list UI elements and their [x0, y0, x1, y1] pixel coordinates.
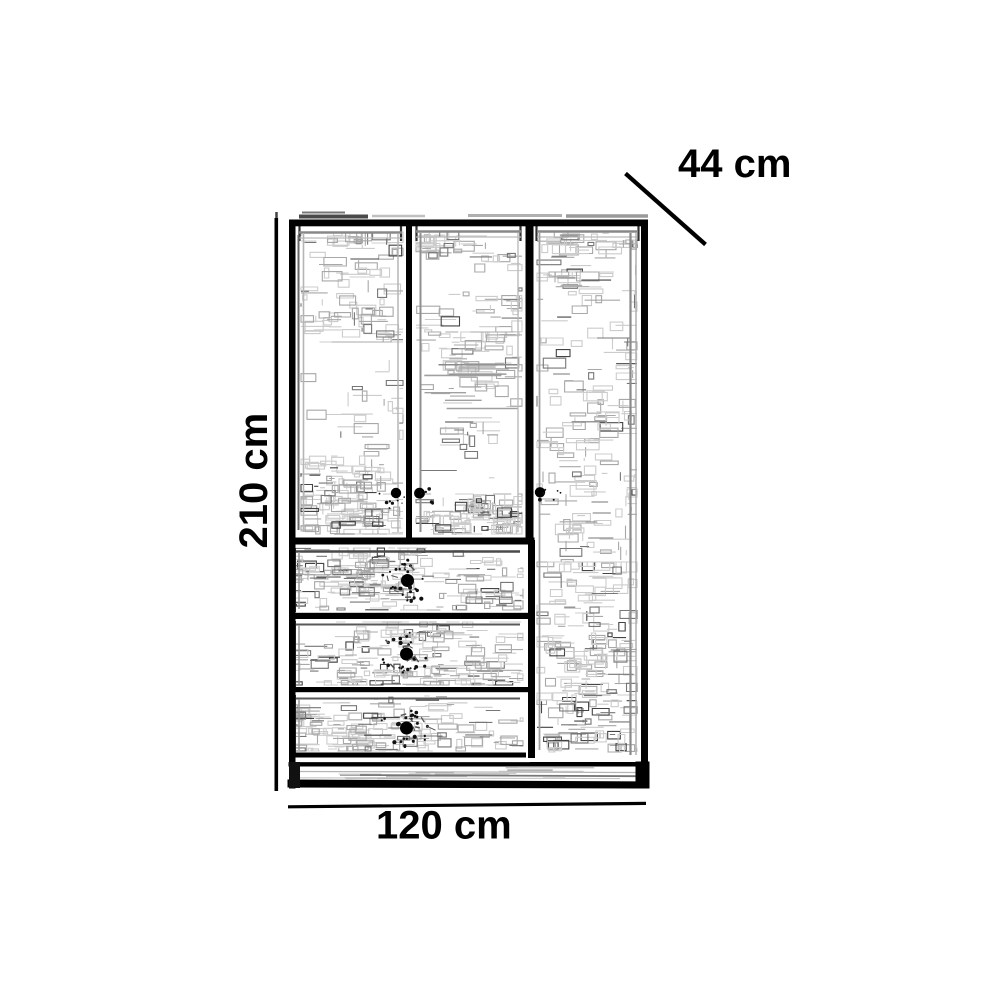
svg-text:210 cm: 210 cm — [232, 413, 276, 549]
svg-text:44 cm: 44 cm — [678, 142, 791, 186]
svg-text:120 cm: 120 cm — [376, 804, 512, 848]
